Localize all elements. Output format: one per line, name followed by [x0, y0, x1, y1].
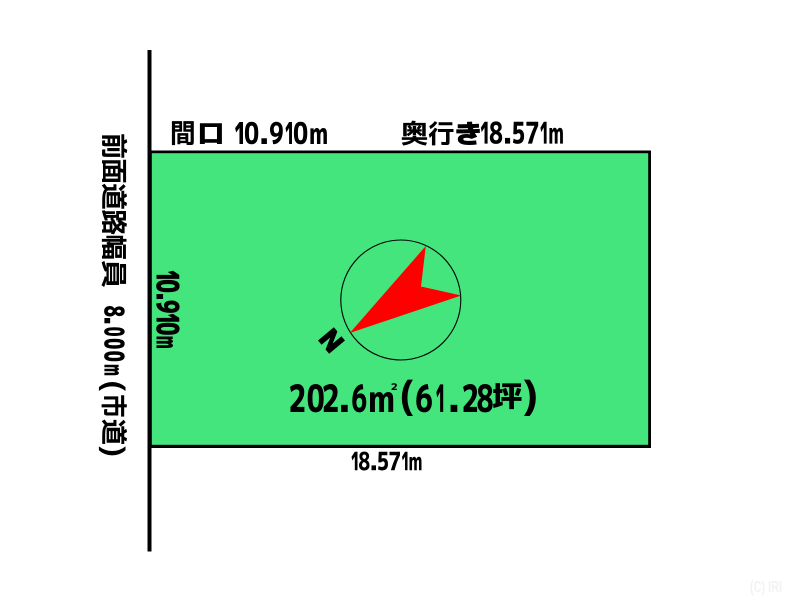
- svg-text:(C) IRI: (C) IRI: [750, 579, 782, 596]
